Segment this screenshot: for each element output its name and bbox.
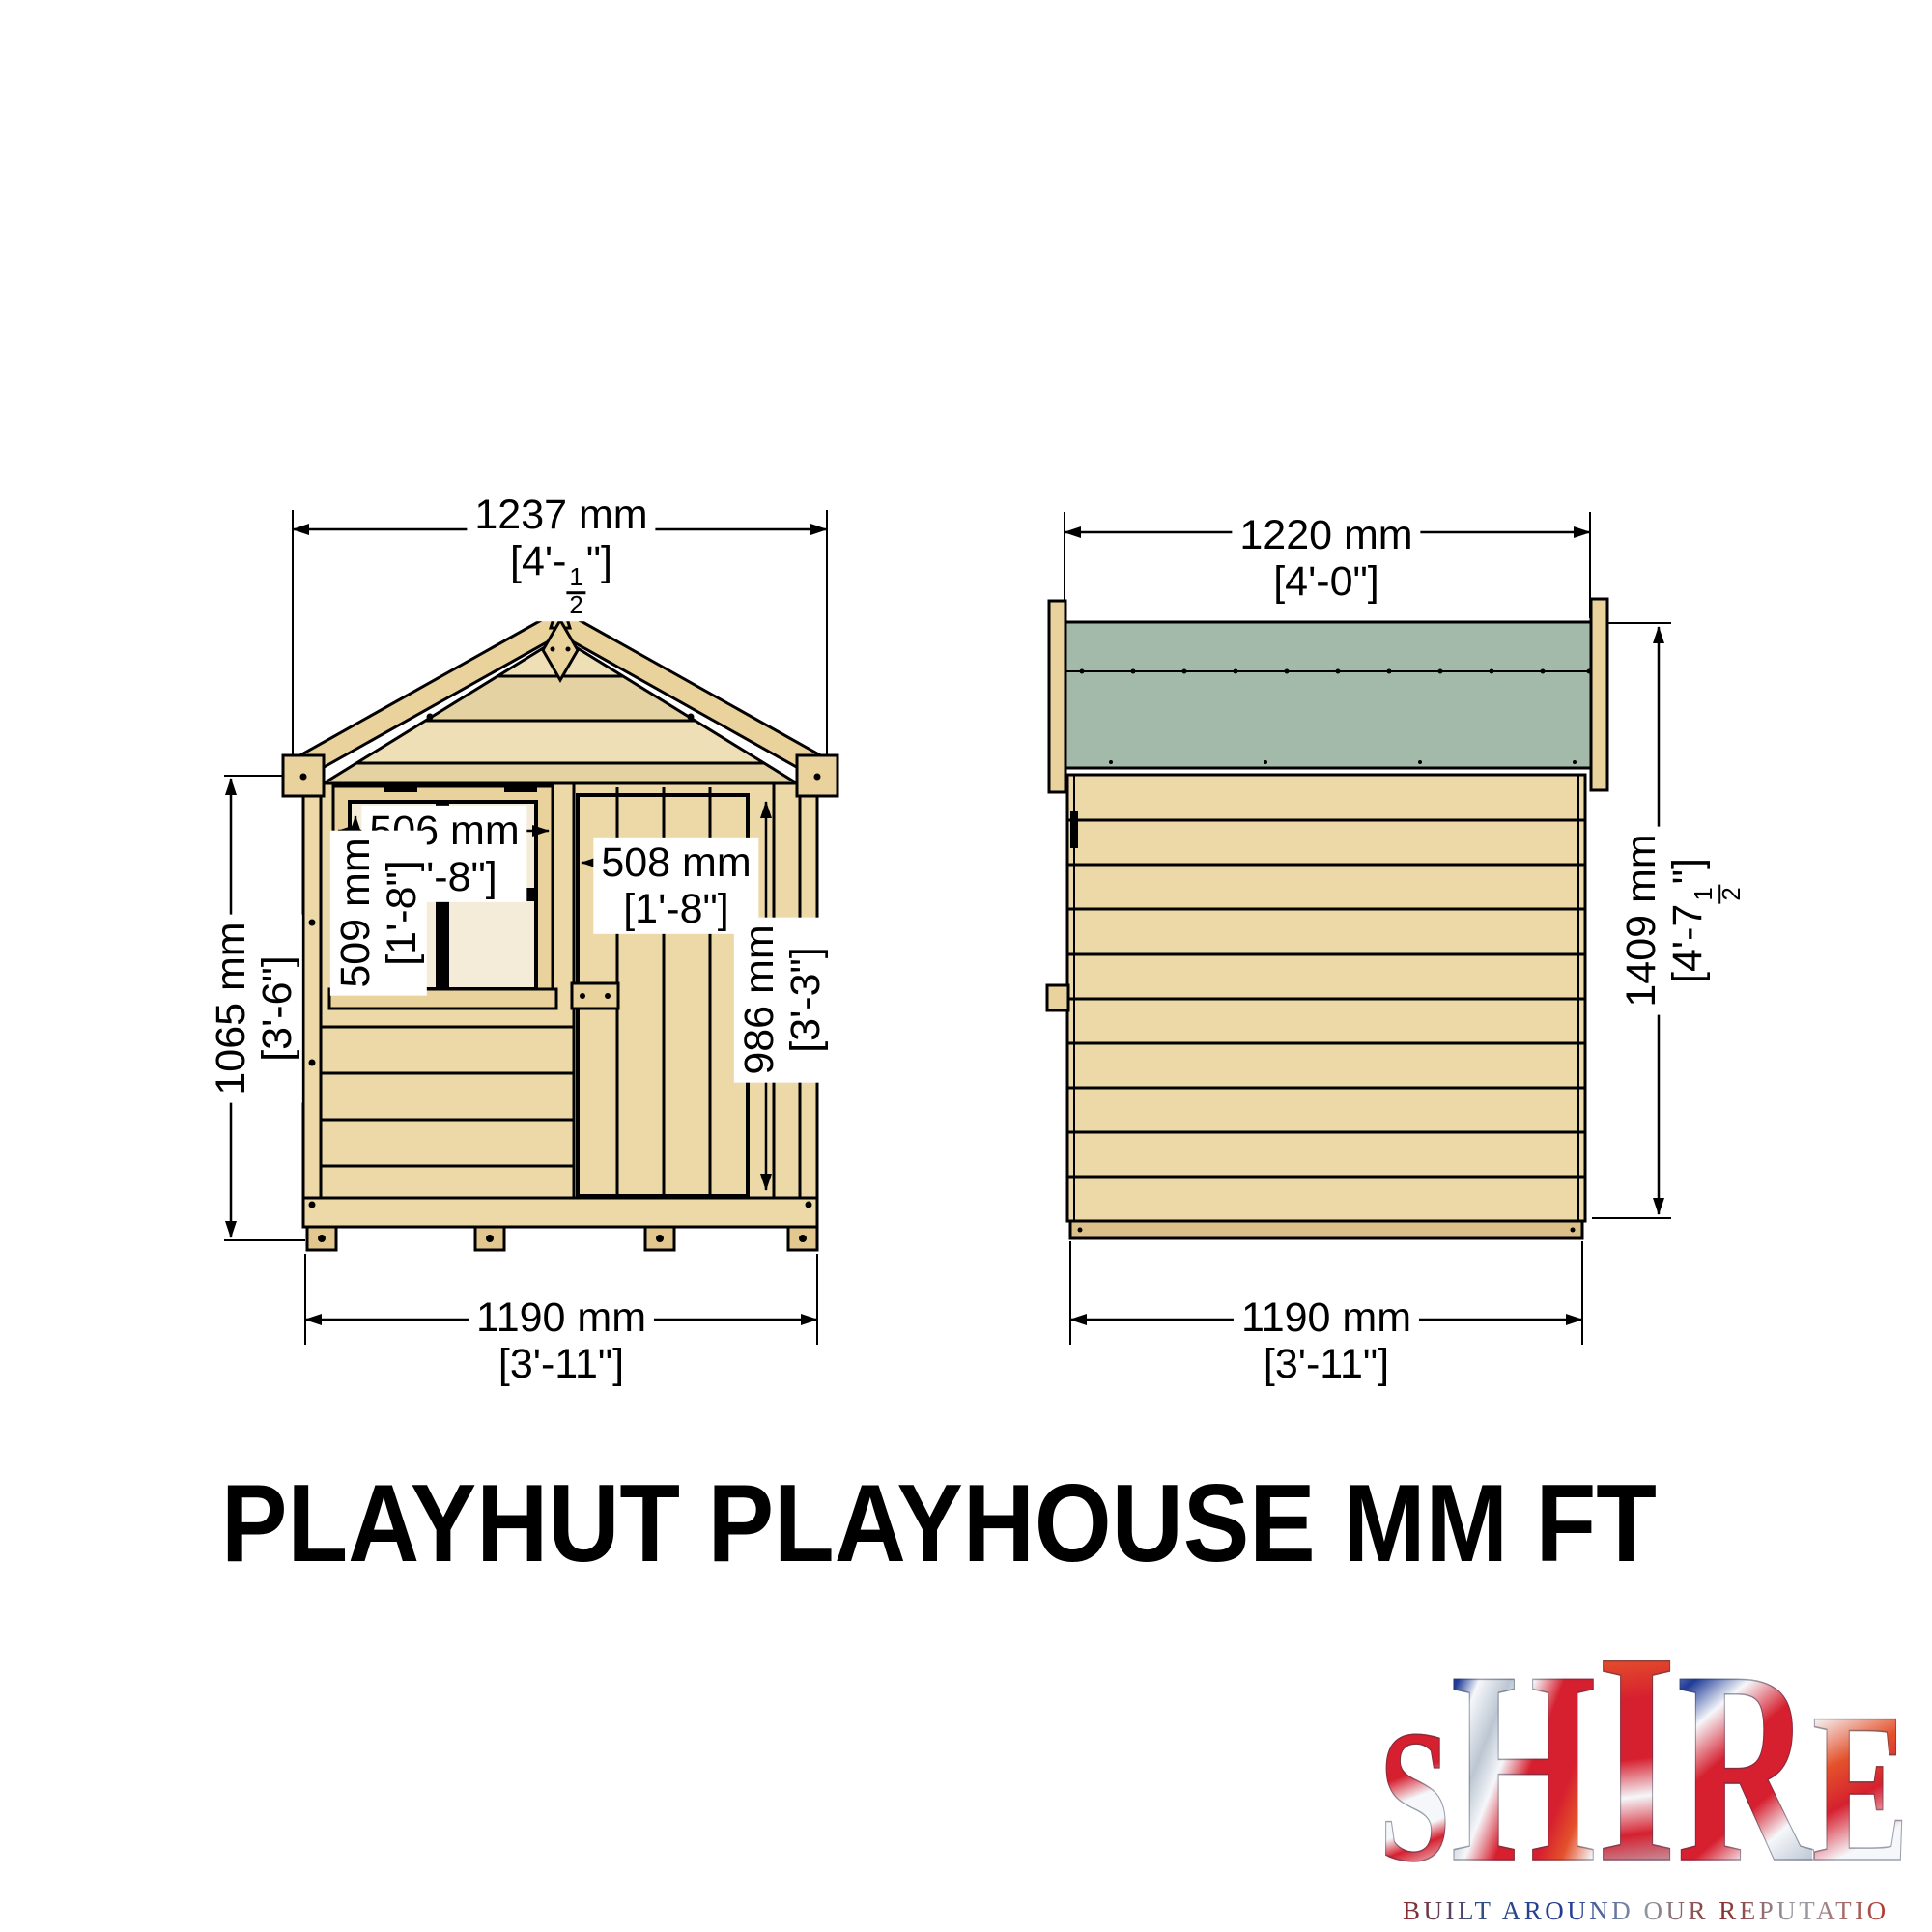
dim-front-base-width: 1190 mm [3'-11"] (469, 1293, 654, 1389)
dim-ft-value: [4'-0"] (1239, 558, 1412, 605)
logo-letter-h: H (1451, 1630, 1597, 1905)
dim-mm-value: 1409 mm (1618, 834, 1664, 1007)
door-latch-side (1047, 985, 1068, 1010)
dim-ft-value: [1'-8"] (601, 886, 751, 932)
dim-ft-value: [3'-6"] (254, 922, 300, 1094)
dim-side-base-width: 1190 mm [3'-11"] (1234, 1293, 1419, 1389)
dim-mm-value: 1065 mm (208, 922, 254, 1094)
dim-mm-value: 1220 mm (1239, 512, 1412, 558)
dim-side-overall-height: 1409 mm [4'-712"] (1616, 826, 1747, 1014)
fraction: 12 (566, 566, 585, 619)
fraction: 12 (1692, 884, 1746, 903)
dim-ft-value: [3'-3"] (782, 924, 829, 1074)
side-roof (1049, 599, 1607, 792)
side-wall (1047, 775, 1585, 1221)
logo-letter-s: S (1379, 1702, 1451, 1891)
shire-wordmark: S H I R E (1480, 1605, 1808, 1910)
dim-mm-value: 1190 mm (1241, 1294, 1411, 1341)
dim-mm-value: 508 mm (601, 839, 751, 886)
dim-front-wall-height: 1065 mm [3'-6"] (206, 914, 302, 1102)
dim-mm-value: 1190 mm (476, 1294, 646, 1341)
page-title: PLAYHUT PLAYHOUSE MM FT (221, 1461, 1657, 1587)
dim-ft-value: [1'-8"] (379, 838, 425, 987)
dim-window-height: 509 mm [1'-8"] (330, 830, 427, 995)
dim-ft-value: [4'-712"] (1664, 834, 1745, 1007)
side-base (1070, 1221, 1582, 1238)
dim-mm-value: 986 mm (736, 924, 782, 1074)
dim-ft-value: [3'-11"] (476, 1341, 646, 1387)
dim-ft-value: [4'-12"] (474, 538, 647, 618)
front-base (303, 1198, 817, 1250)
dim-side-overall-width: 1220 mm [4'-0"] (1232, 510, 1420, 607)
dim-door-height: 986 mm [3'-3"] (734, 917, 831, 1082)
dim-mm-value: 1237 mm (474, 492, 647, 538)
door-handle (572, 983, 618, 1009)
door-hinge-edge (1070, 811, 1078, 848)
logo-letter-i: I (1596, 1605, 1676, 1910)
dim-front-overall-width: 1237 mm [4'-12"] (467, 490, 655, 621)
rear-bargeboard-edge (1591, 599, 1607, 790)
technical-drawing-page: 1237 mm [4'-12"] 1220 mm [4'-0"] 1065 mm… (0, 0, 1932, 1932)
shire-logo: S H I R E BUILT AROUND OUR REPUTATION (1403, 1605, 1886, 1926)
logo-letter-r: R (1677, 1630, 1812, 1905)
front-roof (283, 597, 838, 796)
dim-ft-value: [3'-11"] (1241, 1341, 1411, 1387)
logo-letter-e: E (1812, 1681, 1910, 1895)
dim-mm-value: 509 mm (332, 838, 379, 987)
front-bargeboard-edge (1049, 601, 1065, 792)
side-elevation (1047, 512, 1671, 1345)
